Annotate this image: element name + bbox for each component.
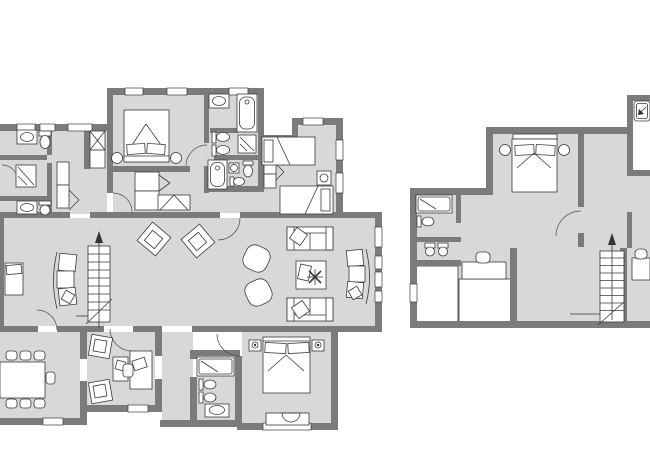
sink-icon-3 [209,94,229,108]
sofa-icon-1 [287,227,333,250]
shower-icon-1 [16,165,36,187]
hall-bench-icon [158,195,190,210]
bathtub-icon-1 [237,94,257,132]
bidet-icon-3 [199,392,216,403]
coffee-table-icon [296,261,326,289]
ground-floor-plan [0,88,382,430]
shower-icon-4 [416,195,452,213]
nightstand-icon-1 [317,171,331,185]
shower-icon-2 [238,135,256,153]
sofa-icon-2 [287,298,333,321]
desk-icon-3 [632,249,650,280]
washbasin-icon-1 [229,163,239,173]
dresser-icon [266,413,309,425]
guest-double-bed-icon [263,337,310,393]
single-bed-icon-2 [280,186,333,214]
toilet-icon-4 [243,161,253,177]
den-armchair-icon-2 [88,379,112,403]
toilet-icon-2 [39,201,51,215]
shower-icon-3 [197,357,234,376]
toilet-icon-1 [39,131,51,149]
floor-plan-stage [0,0,650,450]
toilet-icon-6 [417,216,434,227]
nightstand-lamp-icon-1 [249,340,261,351]
upper-floor-plan [410,95,650,328]
bidet-icon-2 [230,177,245,186]
sink-icon-4 [205,404,229,417]
floor-plan [0,0,650,450]
daybed-icon [5,263,23,295]
toilet-icon-5 [199,379,216,390]
mirror-closet-icon [90,131,105,168]
corner-shower-icon [634,101,650,121]
sink-icon-2 [17,201,37,214]
ground-floor-plan-floor-areas [0,95,375,423]
den-armchair-icon-1 [88,334,112,358]
nightstand-lamp-icon-2 [312,340,324,351]
bathtub-icon-2 [208,160,227,189]
upper-floor-plan-windows [410,284,417,302]
sink-icon-1 [17,130,37,144]
single-bed-icon-1 [262,137,315,165]
